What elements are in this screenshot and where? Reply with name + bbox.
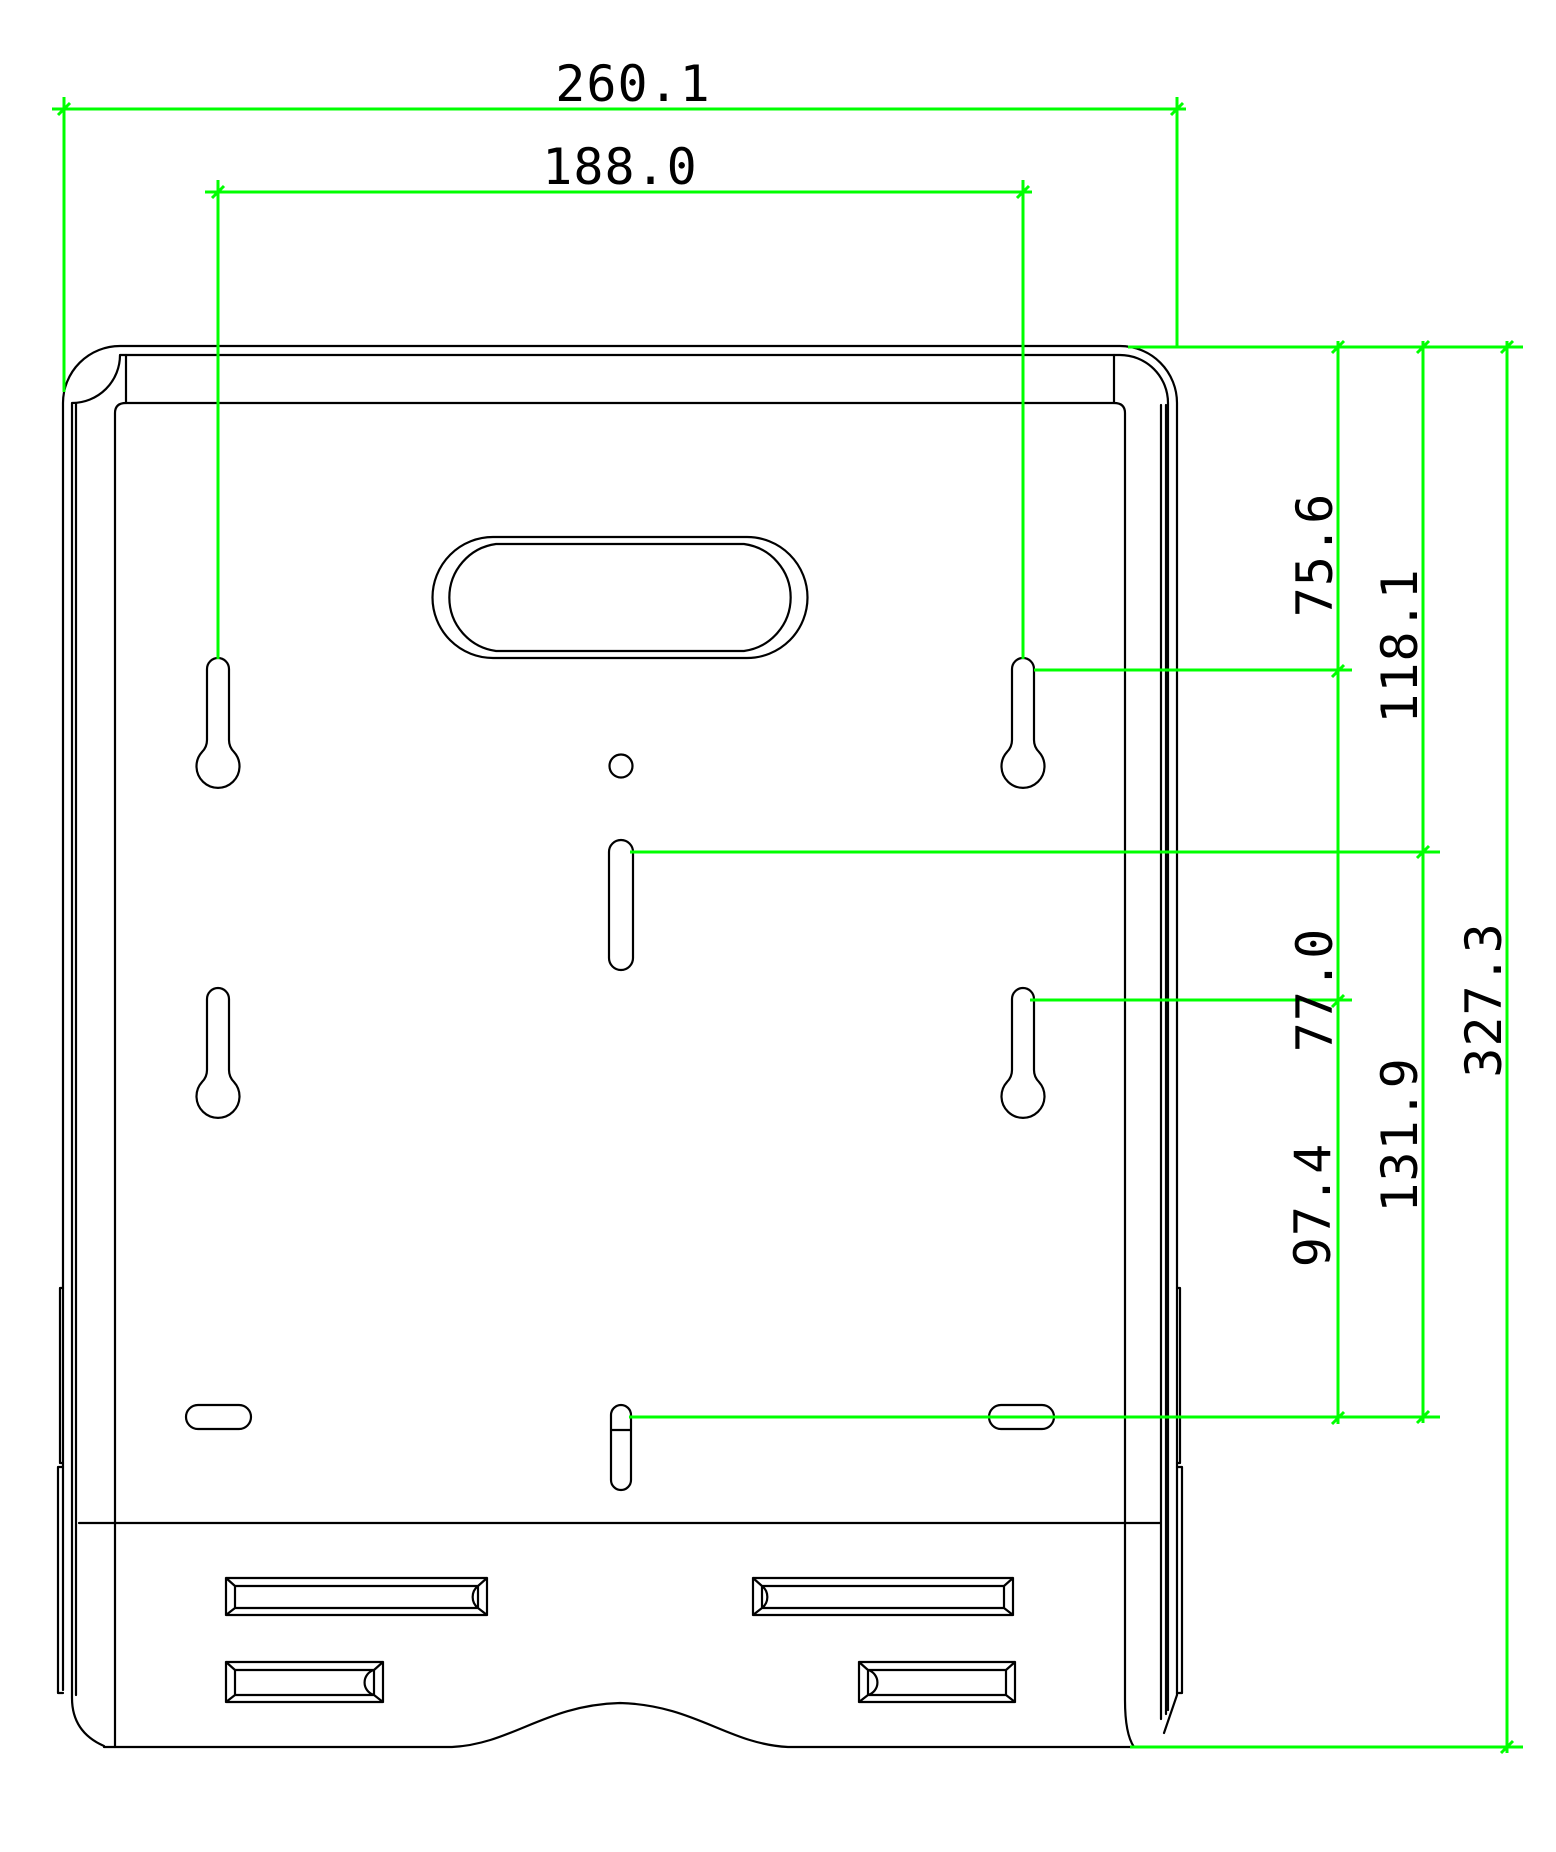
technical-drawing-canvas: 260.1 188.0 75.6 118.1 77.0 97.4 131.9 3… <box>0 0 1556 1852</box>
bracket-dimension-drawing: 260.1 188.0 75.6 118.1 77.0 97.4 131.9 3… <box>0 0 1556 1852</box>
dim-label-overall-width: 260.1 <box>555 55 711 113</box>
plate-outline <box>58 346 1182 1747</box>
keyhole-lower-left <box>197 988 240 1118</box>
dim-label-hole-span-width: 188.0 <box>542 138 698 196</box>
vent-slot-row2-left <box>226 1662 383 1702</box>
vent-slots <box>226 1578 1015 1702</box>
stadium-cutout-inner <box>449 544 790 651</box>
bottom-center-slot <box>611 1405 631 1490</box>
vent-slot-row1-right <box>753 1578 1013 1615</box>
keyhole-lower-right <box>1001 988 1044 1118</box>
cutouts <box>186 537 1054 1490</box>
dim-label-center-slot-to-bottom-slot: 131.9 <box>1371 1057 1429 1213</box>
dim-label-upper-to-lower-keyhole: 77.0 <box>1286 928 1344 1052</box>
outer-edge-bottom-humped <box>104 1703 1134 1747</box>
obround-slot-left <box>186 1405 251 1429</box>
center-pilot-hole <box>610 755 633 778</box>
dim-label-top-to-center-slot: 118.1 <box>1371 568 1429 724</box>
keyhole-upper-left <box>197 658 240 788</box>
dimension-labels: 260.1 188.0 75.6 118.1 77.0 97.4 131.9 3… <box>542 55 1513 1267</box>
fold-line-top-second <box>72 355 1168 1746</box>
keyhole-upper-right <box>1001 658 1044 788</box>
dim-label-top-to-upper-keyhole: 75.6 <box>1286 493 1344 617</box>
center-slot <box>609 840 633 970</box>
vent-slot-row1-left <box>226 1578 487 1615</box>
dim-label-overall-height: 327.3 <box>1455 922 1513 1078</box>
vent-slot-row2-right <box>859 1662 1015 1702</box>
stadium-cutout-outer <box>432 537 807 658</box>
inner-face-outline <box>115 403 1134 1747</box>
dim-label-lower-keyhole-to-bottom-slot: 97.4 <box>1284 1143 1342 1267</box>
